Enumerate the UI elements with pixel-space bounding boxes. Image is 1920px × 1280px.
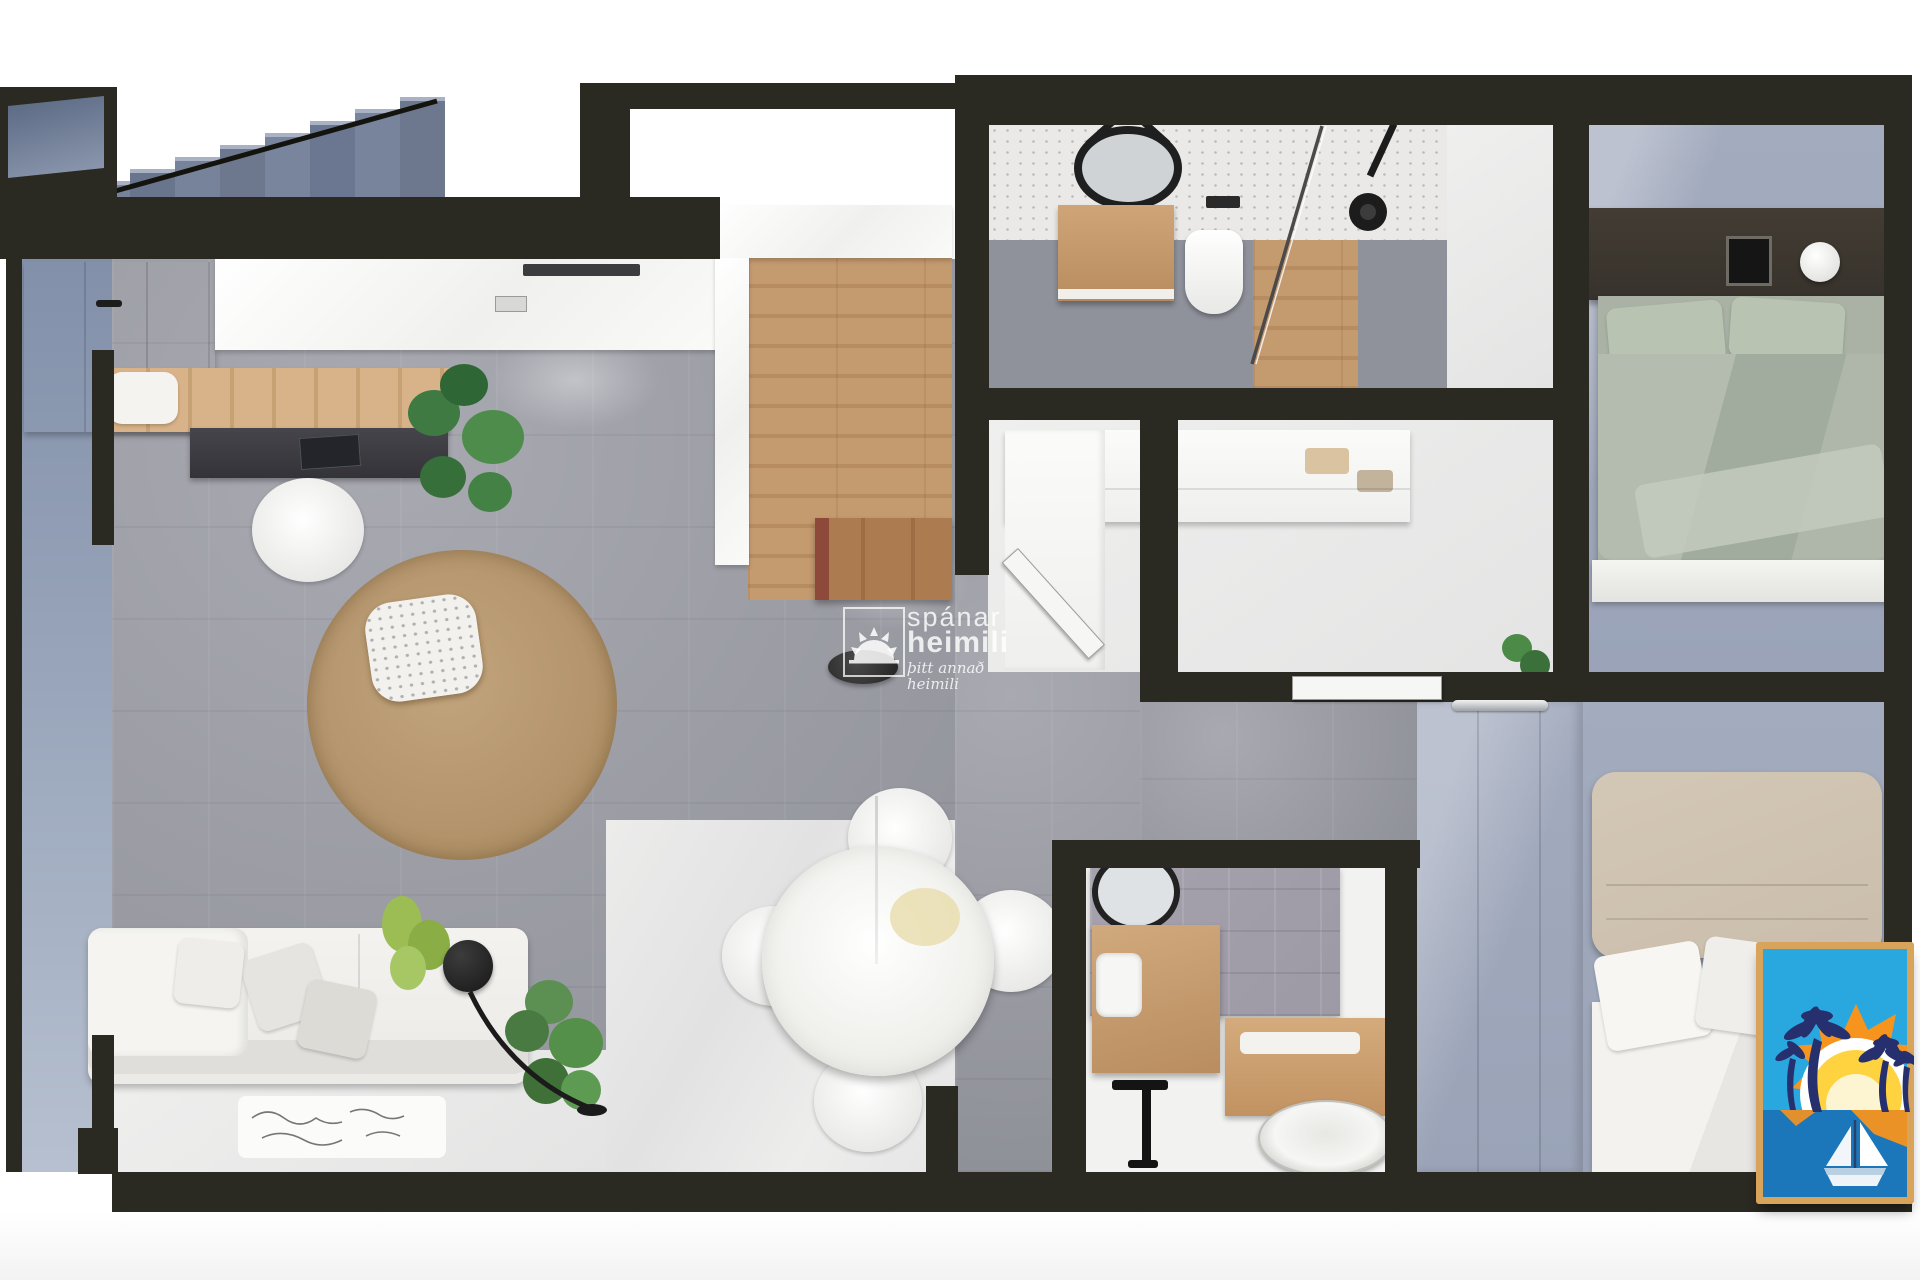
bedside-lamp: [1800, 242, 1840, 282]
shower-arm: [1370, 124, 1394, 176]
watermark: spánar heimili þitt annað heimili: [843, 600, 1023, 684]
wall-bedroom2-top: [1140, 672, 1910, 702]
wall-left-outer: [6, 197, 22, 1172]
leaf: [440, 364, 488, 406]
round-mirror: [1078, 130, 1178, 206]
closet-shelf-item: [1305, 448, 1349, 474]
rug-pouf: [362, 591, 487, 706]
desk-chair: [252, 478, 364, 582]
headboard-seam: [1606, 884, 1868, 886]
wall-top-right: [955, 75, 1910, 125]
kitchen-peninsula-side: [715, 258, 749, 565]
freestanding-tub: [1258, 1100, 1394, 1176]
fixture-pole: [1142, 1088, 1151, 1164]
wardrobe-handle: [96, 300, 122, 307]
cabinet-red-streak: [815, 518, 829, 600]
bathroom1-vanity: [1058, 205, 1174, 301]
wall-closet-hall-divider: [1140, 420, 1178, 672]
wall-bath2-top: [1052, 840, 1420, 868]
headboard-seam: [1606, 918, 1868, 920]
jute-rug: [307, 550, 617, 860]
picture-frame: [1726, 236, 1772, 286]
vanity-shelf-edge: [1058, 289, 1174, 299]
towel: [1240, 1032, 1360, 1054]
watermark-brand-line2: heimili: [907, 628, 1009, 658]
bedroom2-door-leaf: [1292, 676, 1442, 700]
dining-table: [762, 846, 994, 1076]
bench-cushion: [108, 372, 178, 424]
watermark-tagline: þitt annað heimili: [907, 660, 1023, 692]
wall-bath1-bedroom1-divider: [1553, 75, 1589, 672]
wall-top-kitchen: [630, 83, 960, 109]
kitchen-peninsula-top: [715, 205, 952, 258]
wall-balcony-segment-b: [92, 1035, 114, 1135]
wall-bath1-bottom: [988, 388, 1553, 420]
wall-kitchen-bath1-divider: [955, 75, 989, 575]
bottom-page-fade: [0, 1212, 1920, 1280]
kitchen-sink-strip: [523, 264, 640, 276]
bedroom2-door-handle: [1452, 700, 1548, 711]
wall-bottom-outer: [112, 1172, 1912, 1212]
pendant-cord: [875, 796, 878, 964]
sofa-pillow: [173, 937, 246, 1010]
bathroom1-shower-glass: [1230, 120, 1340, 370]
tv-panel: [8, 96, 104, 178]
leaf: [390, 946, 426, 990]
kitchen-low-cabinet: [815, 518, 952, 600]
table-decor-board: [890, 888, 960, 946]
wall-stair-right: [580, 83, 630, 205]
bedroom2-wardrobe: [1417, 702, 1583, 1172]
agency-logo: [1756, 942, 1914, 1204]
wall-dining-pier: [926, 1086, 958, 1174]
wall-bath2-right: [1385, 866, 1417, 1172]
laptop: [299, 434, 361, 470]
sofa-pillow: [295, 977, 378, 1060]
bed1: [1598, 296, 1888, 588]
floorplan-3d-render: spánar heimili þitt annað heimili: [0, 0, 1920, 1280]
bathroom1-shower-white-zone: [1447, 125, 1553, 388]
art-floor-mat: [238, 1096, 446, 1158]
wall-bath2-left: [1052, 840, 1086, 1172]
watermark-sun-icon: [845, 609, 903, 675]
bed2-pillow: [1592, 940, 1713, 1053]
bedroom1-headboard-shelf: [1588, 208, 1884, 300]
fixture-foot: [1128, 1160, 1158, 1168]
wall-under-stairs: [0, 197, 720, 259]
bed1-footboard: [1592, 560, 1892, 602]
leaf: [420, 456, 466, 498]
bed2-headboard: [1592, 772, 1882, 958]
bathroom2-black-fixture: [1108, 1076, 1178, 1172]
leaf: [462, 410, 524, 464]
vanity-sink: [1096, 953, 1142, 1017]
bathroom1-shower-fixture: [1330, 118, 1410, 248]
bathroom2-vanity: [1092, 925, 1220, 1073]
wall-balcony-segment-a: [92, 350, 114, 545]
leaf: [468, 472, 512, 512]
staircase: [85, 85, 445, 199]
monstera-plant: [400, 360, 540, 540]
kitchen-counter-top: [215, 258, 720, 350]
fixture-bar: [1112, 1080, 1168, 1090]
watermark-sun-frame: [843, 607, 905, 677]
arc-lamp-arm: [440, 960, 620, 1130]
wall-stair-left-block: [0, 87, 117, 197]
kitchen-hob: [495, 296, 527, 312]
